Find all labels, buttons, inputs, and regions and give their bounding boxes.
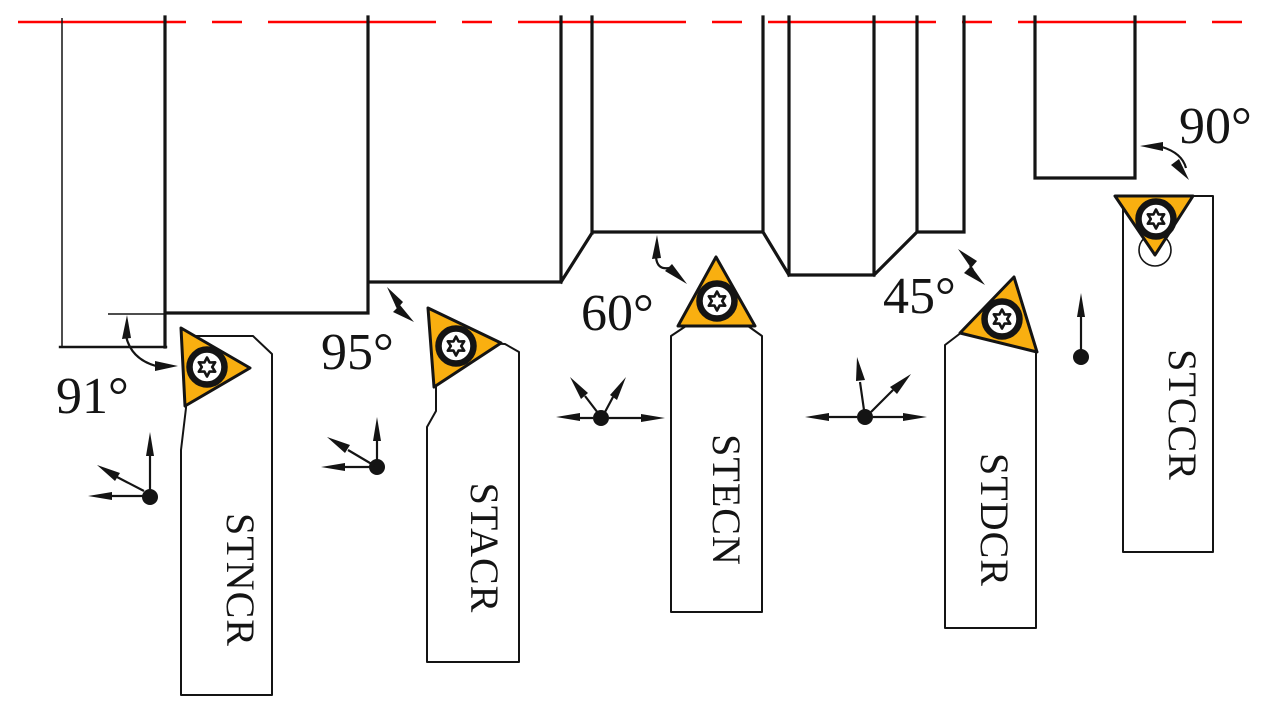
stccr-angle-label: 90° [1179,98,1252,155]
stecn-angle-label: 60° [581,285,654,342]
stncr-angle-label: 91° [56,368,129,425]
stecn-feed-indicator [556,377,665,426]
tool-stccr: STCCR [1115,196,1213,552]
stecn-angle-dimension: 60° [581,235,687,342]
stacr-feed-indicator [321,417,385,475]
stdcr-angle-label: 45° [883,268,956,325]
stacr-label: STACR [462,483,507,614]
stdcr-angle-dimension: 45° [883,249,985,325]
stccr-label: STCCR [1160,349,1205,481]
stncr-label: STNCR [218,513,263,647]
stacr-angle-label: 95° [321,324,394,381]
tool-stacr: STACR [427,308,519,662]
torx-screw-icon [439,329,474,364]
torx-screw-icon [985,302,1020,337]
toolholder-diagram: STNCR 91° STACR 95° STECN [0,0,1280,719]
stccr-angle-dimension: 90° [1140,98,1252,180]
stccr-feed-indicator [1073,293,1089,365]
stdcr-feed-indicator [805,357,927,425]
torx-screw-icon [1139,202,1174,237]
tool-stecn: STECN [671,257,762,612]
stecn-label: STECN [704,434,749,566]
stncr-angle-dimension: 91° [56,315,178,425]
diagram-canvas: STNCR 91° STACR 95° STECN [0,0,1280,719]
tool-stncr: STNCR [181,328,272,695]
stncr-feed-indicator [88,432,158,505]
torx-screw-icon [190,350,225,385]
tool-stdcr: STDCR [945,277,1037,628]
stdcr-label: STDCR [972,453,1017,587]
auxiliary-lines [62,18,166,347]
torx-screw-icon [700,284,735,319]
